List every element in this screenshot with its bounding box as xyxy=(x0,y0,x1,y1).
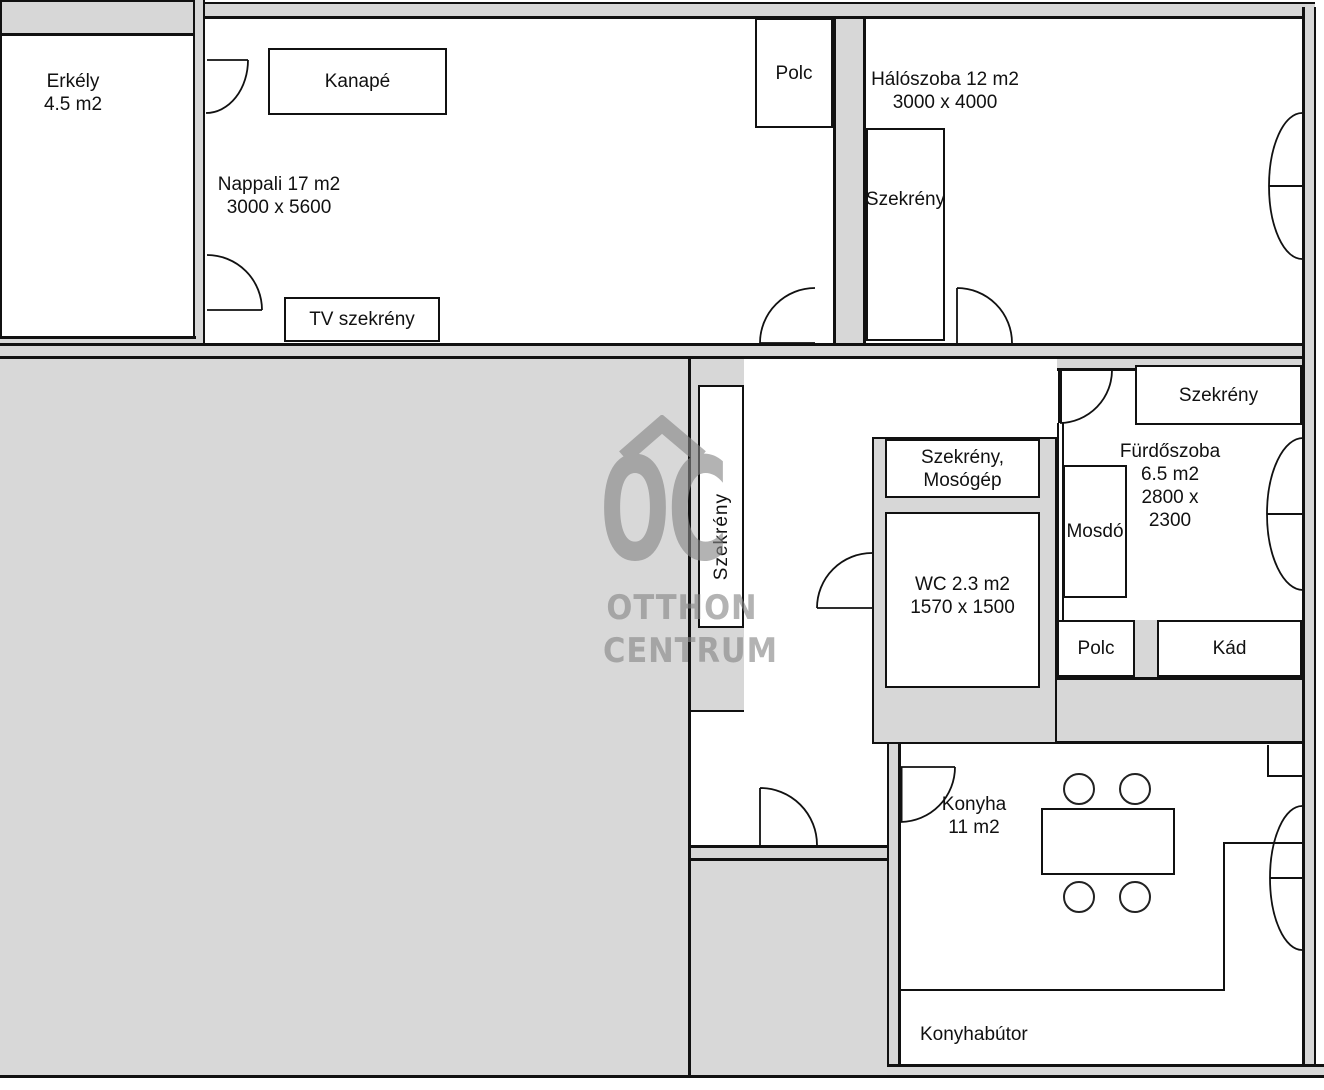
kitchen-chair xyxy=(1119,773,1151,805)
room-label-kitchen: Konyha 11 m2 xyxy=(914,793,1034,839)
wall-hall-column-strip xyxy=(691,387,698,626)
wall-kitchen-left xyxy=(887,744,901,1075)
wall-balcony-left-line xyxy=(0,0,2,341)
room-bathroom-dims1: 2800 x xyxy=(1105,486,1235,509)
wall-kitchen-bottom xyxy=(887,1064,1324,1078)
kitchen-corner-unit-line-h xyxy=(1267,775,1302,777)
kitchen-corner-unit-line-v xyxy=(1267,745,1269,777)
wall-hall-column-bottom xyxy=(691,626,744,712)
kitchen-counter-line-bottom xyxy=(901,989,1225,991)
door-bathroom xyxy=(1060,369,1112,423)
wall-bottom-left-line xyxy=(0,1075,888,1078)
furniture-konyhabutor-label: Konyhabútor xyxy=(920,1023,1028,1046)
room-bathroom-area: 6.5 m2 xyxy=(1105,463,1235,486)
furniture-szekreny-bedroom: Szekrény xyxy=(866,128,945,341)
wall-corridor-bottom xyxy=(691,845,887,861)
room-living-dims: 3000 x 5600 xyxy=(179,196,379,219)
radiator-midline-kitchen xyxy=(1270,877,1302,879)
furniture-kad: Kád xyxy=(1157,620,1302,677)
furniture-szekreny-bathroom: Szekrény xyxy=(1135,365,1302,425)
furniture-szekreny-hall-label: Szekrény xyxy=(710,493,733,580)
room-balcony-area: 4.5 m2 xyxy=(13,93,133,116)
wall-bathroom-bottom xyxy=(1057,677,1302,744)
furniture-kanape: Kanapé xyxy=(268,48,447,115)
kitchen-counter-line-right xyxy=(1225,842,1302,844)
furniture-polc-bathroom-label: Polc xyxy=(1078,637,1115,660)
furniture-polc-top-label: Polc xyxy=(776,62,813,85)
room-label-bathroom: Fürdőszoba 6.5 m2 2800 x 2300 xyxy=(1105,440,1235,532)
room-balcony-name: Erkély xyxy=(13,70,133,93)
furniture-polc-top: Polc xyxy=(755,18,833,128)
room-living-name: Nappali 17 m2 xyxy=(179,173,379,196)
wall-horizontal-main xyxy=(0,343,1316,359)
kitchen-chair xyxy=(1119,881,1151,913)
furniture-tv-szekreny-label: TV szekrény xyxy=(309,308,415,331)
door-living-upper xyxy=(206,60,248,113)
room-label-balcony: Erkély 4.5 m2 xyxy=(13,70,133,116)
room-kitchen-name: Konyha xyxy=(914,793,1034,816)
floor-area-corridor-bottom xyxy=(691,861,887,1075)
kitchen-chair xyxy=(1063,773,1095,805)
room-bathroom-name: Fürdőszoba xyxy=(1105,440,1235,463)
wall-right-outer xyxy=(1302,7,1316,1078)
furniture-szekreny-mosogep: Szekrény, Mosógép xyxy=(885,439,1040,498)
furniture-tv-szekreny: TV szekrény xyxy=(284,297,440,342)
furniture-szekreny-mosogep-line1: Szekrény, xyxy=(921,446,1004,469)
furniture-kitchen-table xyxy=(1041,808,1175,875)
room-label-bedroom: Hálószoba 12 m2 3000 x 4000 xyxy=(845,68,1045,114)
floor-plan: Kanapé TV szekrény Polc Szekrény Szekrén… xyxy=(0,0,1324,1090)
furniture-szekreny-bedroom-label: Szekrény xyxy=(866,188,945,211)
room-bedroom-dims: 3000 x 4000 xyxy=(845,91,1045,114)
room-kitchen-area: 11 m2 xyxy=(914,816,1034,839)
room-wc: WC 2.3 m2 1570 x 1500 xyxy=(885,512,1040,688)
door-living-bottom xyxy=(760,288,815,343)
wall-top-main xyxy=(196,2,1315,19)
room-bedroom-name: Hálószoba 12 m2 xyxy=(845,68,1045,91)
door-wc xyxy=(817,553,872,608)
wall-top-balcony xyxy=(0,0,196,36)
room-wc-name: WC 2.3 m2 xyxy=(915,573,1010,596)
wall-stub-polc-kad xyxy=(1135,620,1157,677)
kitchen-chair xyxy=(1063,881,1095,913)
room-label-living: Nappali 17 m2 3000 x 5600 xyxy=(179,173,379,219)
furniture-szekreny-mosogep-line2: Mosógép xyxy=(923,469,1001,492)
door-corridor xyxy=(760,788,817,845)
radiator-midline-bathroom xyxy=(1267,513,1303,515)
furniture-polc-bathroom: Polc xyxy=(1057,620,1135,677)
door-living-lower xyxy=(207,255,262,310)
kitchen-counter-line-vertical xyxy=(1223,842,1225,991)
furniture-kad-label: Kád xyxy=(1213,637,1247,660)
furniture-szekreny-bathroom-label: Szekrény xyxy=(1179,384,1258,407)
wall-hall-column-top xyxy=(691,359,744,387)
furniture-kanape-label: Kanapé xyxy=(325,70,391,93)
floor-area-left xyxy=(0,359,689,1075)
room-bathroom-dims2: 2300 xyxy=(1105,509,1235,532)
room-wc-dims: 1570 x 1500 xyxy=(910,596,1015,619)
radiator-midline-bedroom xyxy=(1269,185,1302,187)
furniture-szekreny-hall: Szekrény xyxy=(698,385,744,628)
door-bedroom xyxy=(957,288,1012,343)
